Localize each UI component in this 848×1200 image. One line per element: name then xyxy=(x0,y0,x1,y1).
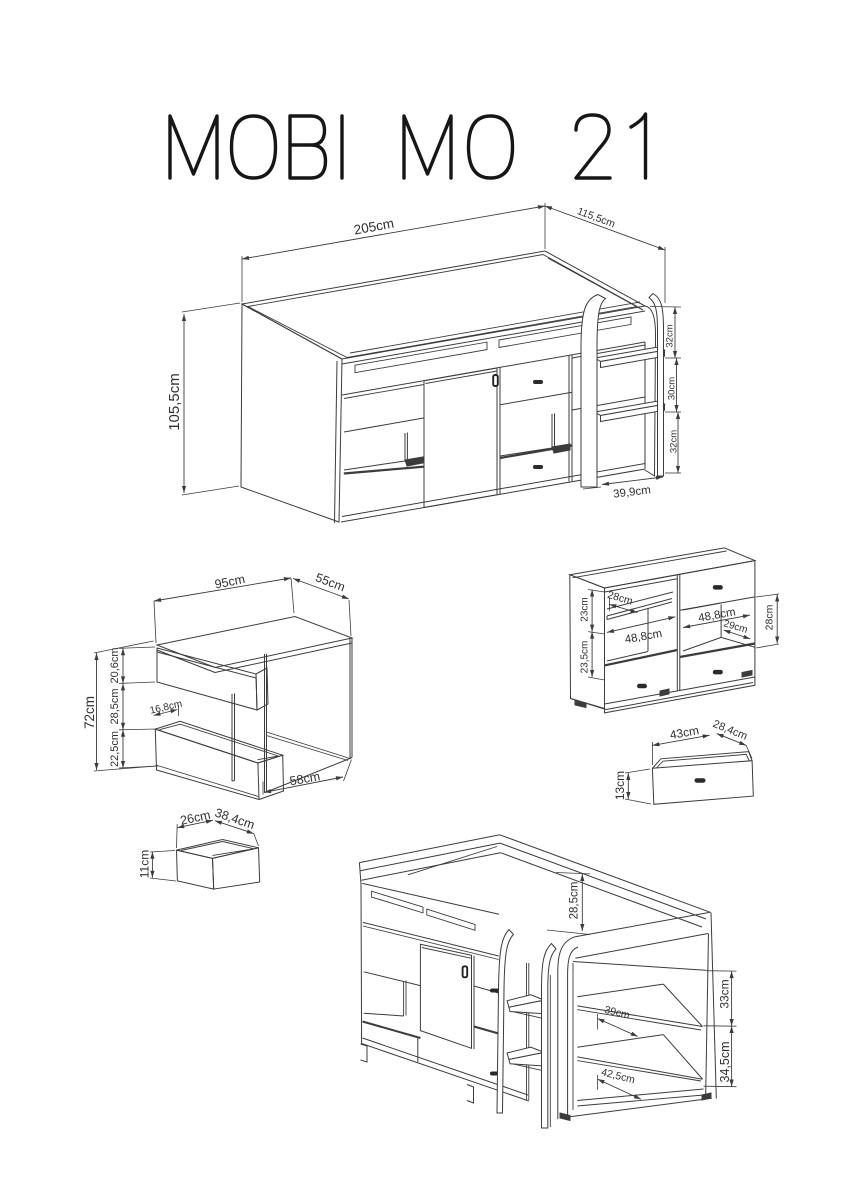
svg-text:28,5cm: 28,5cm xyxy=(569,882,581,920)
svg-text:30cm: 30cm xyxy=(667,377,678,400)
svg-text:72cm: 72cm xyxy=(82,696,97,729)
svg-text:23,5cm: 23,5cm xyxy=(580,641,591,674)
svg-text:34,5cm: 34,5cm xyxy=(718,1042,732,1083)
svg-text:23cm: 23cm xyxy=(580,597,591,621)
svg-text:33cm: 33cm xyxy=(718,979,732,1008)
svg-text:28,5cm: 28,5cm xyxy=(109,688,121,724)
svg-text:32cm: 32cm xyxy=(665,324,676,347)
svg-text:20,6cm: 20,6cm xyxy=(109,647,121,683)
svg-text:13cm: 13cm xyxy=(613,771,627,800)
svg-text:11cm: 11cm xyxy=(138,850,152,878)
svg-text:28cm: 28cm xyxy=(763,604,775,630)
svg-text:32cm: 32cm xyxy=(669,430,680,453)
svg-text:22,5cm: 22,5cm xyxy=(109,731,121,767)
svg-text:105,5cm: 105,5cm xyxy=(166,373,183,431)
